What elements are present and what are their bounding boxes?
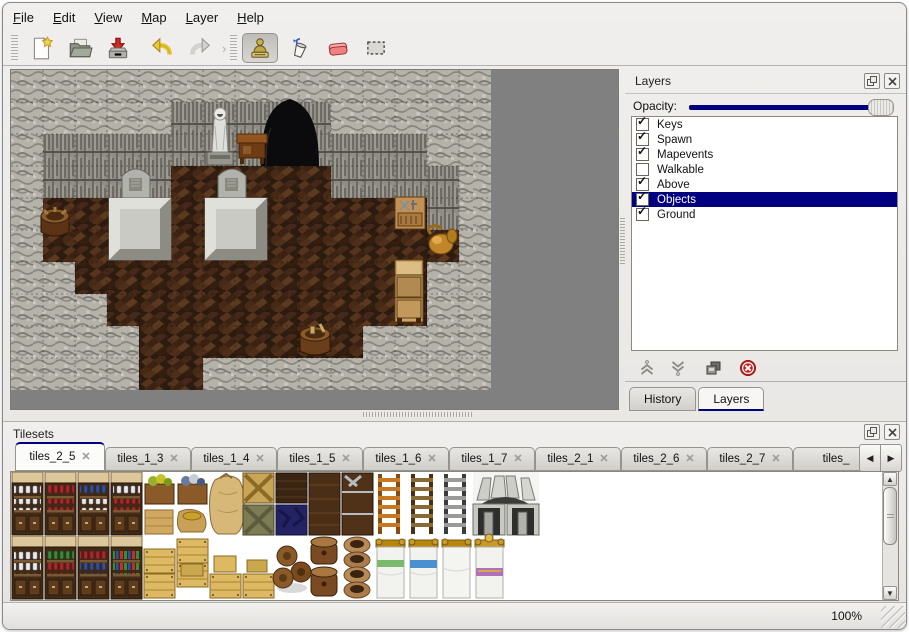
eraser-tool-button[interactable]	[320, 33, 356, 63]
toolbar-handle[interactable]	[11, 35, 18, 61]
scroll-tabs-left-button[interactable]: ◀	[859, 444, 880, 472]
fill-tool-icon	[287, 35, 313, 61]
open-file-button[interactable]	[62, 33, 98, 63]
dock-tabs: History Layers	[629, 387, 764, 411]
opacity-slider-handle[interactable]	[868, 99, 894, 116]
float-tilesets-button[interactable]	[864, 424, 880, 440]
tab-close-icon[interactable]: ✕	[81, 444, 90, 471]
layer-label: Walkable	[657, 164, 704, 176]
scrollbar-thumb[interactable]	[883, 487, 897, 545]
layer-row-spawn[interactable]: ✓Spawn	[632, 132, 897, 147]
toolbar: ›	[3, 31, 906, 66]
redo-icon	[187, 35, 213, 61]
gravestone-right	[218, 169, 246, 198]
tile-x-crates	[243, 473, 373, 535]
layer-delete-button[interactable]	[738, 358, 758, 378]
layer-raise-button[interactable]	[637, 358, 657, 378]
menu-file[interactable]: File	[13, 10, 34, 25]
select-tool-icon	[363, 35, 389, 61]
zoom-level: 100%	[831, 609, 862, 623]
close-icon	[888, 77, 897, 86]
splitter-horizontal[interactable]	[363, 412, 473, 417]
map-canvas[interactable]	[11, 70, 491, 390]
tomb-platform-right	[205, 198, 267, 260]
layer-row-above[interactable]: ✓Above	[632, 177, 897, 192]
tile-stone-doorways	[473, 472, 539, 535]
toolbar-handle-2[interactable]	[230, 35, 237, 61]
tab-close-icon[interactable]: ✕	[427, 448, 436, 470]
layer-label: Above	[657, 179, 690, 191]
tile-barrels	[273, 537, 370, 598]
opacity-label: Opacity:	[633, 99, 677, 113]
tilesets-panel: Tilesets tiles_2_5✕ tiles_1_3✕ tiles_1_	[3, 421, 906, 604]
tomb-platform-left	[109, 198, 171, 260]
layer-label: Keys	[657, 119, 683, 131]
tab-scroll-buttons: ◀ ▶	[859, 444, 902, 472]
close-icon	[888, 428, 897, 437]
tileset-canvas[interactable]	[11, 472, 541, 600]
scroll-tabs-right-button[interactable]: ▶	[880, 444, 902, 472]
barrel-left	[41, 207, 69, 236]
scroll-up-button[interactable]: ▲	[883, 472, 897, 486]
open-folder-icon	[67, 35, 93, 61]
layer-label: Spawn	[657, 134, 692, 146]
menu-bar: File Edit View Map Layer Help	[3, 3, 907, 31]
app-window: File Edit View Map Layer Help	[2, 2, 907, 630]
layer-checkbox[interactable]: ✓	[636, 208, 649, 221]
tileset-tab-tiles_2_5[interactable]: tiles_2_5✕	[15, 442, 105, 471]
tileset-tab-tiles_2_7[interactable]: tiles_2_7✕	[707, 447, 793, 471]
layers-panel: Layers Opacity: ✓Keys	[625, 69, 906, 413]
tileset-tab-tiles_1_7[interactable]: tiles_1_7✕	[449, 447, 535, 471]
eraser-tool-icon	[325, 35, 351, 61]
menu-layer[interactable]: Layer	[186, 10, 219, 25]
layer-lower-button[interactable]	[668, 358, 688, 378]
layer-list[interactable]: ✓Keys ✓Spawn ✓Mapevents Walkable ✓Above …	[631, 116, 898, 351]
status-bar: 100%	[3, 602, 906, 629]
float-icon	[867, 76, 877, 86]
map-viewport[interactable]	[10, 69, 619, 410]
close-tilesets-button[interactable]	[884, 424, 900, 440]
menu-map[interactable]: Map	[141, 10, 166, 25]
duplicate-layer-icon	[704, 359, 722, 377]
tileset-tab-tiles_2_6[interactable]: tiles_2_6✕	[621, 447, 707, 471]
opacity-row: Opacity:	[633, 98, 898, 116]
redo-button[interactable]	[182, 33, 218, 63]
tab-close-icon[interactable]: ✕	[599, 448, 608, 470]
cabinet	[395, 260, 423, 323]
scroll-down-button[interactable]: ▼	[883, 586, 897, 600]
gravestone-left	[122, 169, 150, 198]
new-file-icon	[29, 35, 55, 61]
tile-beds	[376, 534, 504, 598]
fill-tool-button[interactable]	[282, 33, 318, 63]
tab-layers[interactable]: Layers	[698, 387, 764, 411]
layer-row-ground[interactable]: ✓Ground	[632, 207, 897, 222]
layer-row-keys[interactable]: ✓Keys	[632, 117, 897, 132]
tilesets-panel-title: Tilesets	[13, 427, 54, 441]
menu-view[interactable]: View	[94, 10, 122, 25]
tab-close-icon[interactable]: ✕	[513, 448, 522, 470]
tile-shelves-bottom	[12, 536, 142, 599]
layer-duplicate-button[interactable]	[703, 358, 723, 378]
lower-layer-icon	[669, 359, 687, 377]
delete-layer-icon	[739, 359, 757, 377]
tab-close-icon[interactable]: ✕	[255, 448, 264, 470]
layers-panel-header: Layers	[625, 69, 906, 94]
tab-close-icon[interactable]: ✕	[341, 448, 350, 470]
float-panel-button[interactable]	[864, 73, 880, 89]
window-resize-grip[interactable]	[881, 606, 905, 628]
select-tool-button[interactable]	[358, 33, 394, 63]
layer-row-walkable[interactable]: Walkable	[632, 162, 897, 177]
tool-crate	[395, 197, 425, 229]
layer-label: Ground	[657, 209, 695, 221]
stamp-tool-button[interactable]	[242, 33, 278, 63]
tileset-tab-partial[interactable]: tiles_	[793, 447, 860, 471]
menu-edit[interactable]: Edit	[53, 10, 75, 25]
opacity-slider-track[interactable]	[689, 105, 886, 110]
tab-history[interactable]: History	[629, 387, 696, 411]
tile-clay-pots	[344, 537, 370, 598]
tile-ladders	[378, 474, 466, 534]
stamp-tool-icon	[247, 35, 273, 61]
tileset-tab-tiles_2_1[interactable]: tiles_2_1✕	[535, 447, 621, 471]
tileset-tab-tiles_1_5[interactable]: tiles_1_5✕	[277, 447, 363, 471]
layer-checkbox[interactable]: ✓	[636, 148, 649, 161]
tileset-tab-tiles_1_3[interactable]: tiles_1_3✕	[105, 447, 191, 471]
raise-layer-icon	[638, 359, 656, 377]
barrel-bottom	[300, 324, 330, 355]
tileset-tab-tiles_1_4[interactable]: tiles_1_4✕	[191, 447, 277, 471]
tab-close-icon[interactable]: ✕	[169, 448, 178, 470]
tile-goods-crates	[145, 474, 244, 534]
layer-label: Mapevents	[657, 149, 713, 161]
layers-panel-title: Layers	[635, 74, 671, 88]
tileset-tab-tiles_1_6[interactable]: tiles_1_6✕	[363, 447, 449, 471]
layer-label: Objects	[657, 194, 696, 206]
undo-button[interactable]	[144, 33, 180, 63]
menu-help[interactable]: Help	[237, 10, 264, 25]
layer-actions	[625, 355, 906, 382]
close-panel-button[interactable]	[884, 73, 900, 89]
tileset-view[interactable]: ▲ ▼	[10, 471, 899, 601]
layer-row-mapevents[interactable]: ✓Mapevents	[632, 147, 897, 162]
layer-row-objects-selected[interactable]: ✓Objects	[632, 192, 897, 207]
undo-icon	[149, 35, 175, 61]
tile-tan-crates	[144, 539, 274, 598]
scrollbar-grip	[887, 514, 894, 520]
new-file-button[interactable]	[24, 33, 60, 63]
tileset-scrollbar[interactable]: ▲ ▼	[882, 472, 898, 600]
save-file-button[interactable]	[100, 33, 136, 63]
tile-shelves-top	[12, 472, 142, 535]
tab-close-icon[interactable]: ✕	[685, 448, 694, 470]
save-icon	[105, 35, 131, 61]
tileset-tab-bar: tiles_2_5✕ tiles_1_3✕ tiles_1_4✕ tiles_1…	[15, 442, 860, 471]
float-icon	[867, 427, 877, 437]
toolbar-overflow-chevron[interactable]: ›	[222, 41, 226, 56]
tab-close-icon[interactable]: ✕	[771, 448, 780, 470]
